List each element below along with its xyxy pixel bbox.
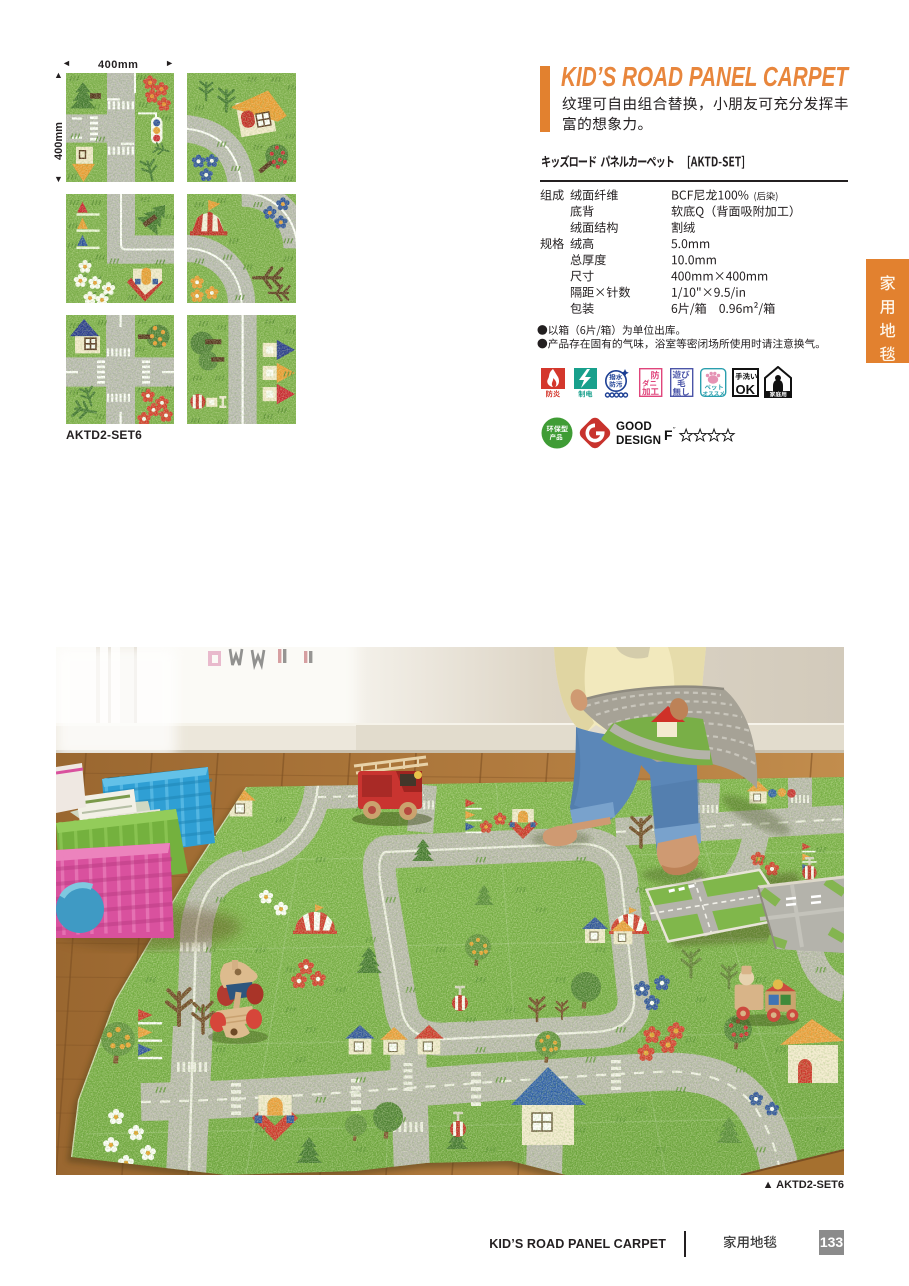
svg-text:DESIGN: DESIGN	[616, 434, 661, 447]
svg-text:GOOD: GOOD	[616, 420, 652, 433]
svg-text:OK: OK	[736, 382, 756, 397]
svg-text:′′: ′′	[673, 427, 676, 434]
svg-text:F: F	[664, 427, 673, 443]
svg-text:KID’S ROAD PANEL CARPET: KID’S ROAD PANEL CARPET	[561, 61, 850, 92]
